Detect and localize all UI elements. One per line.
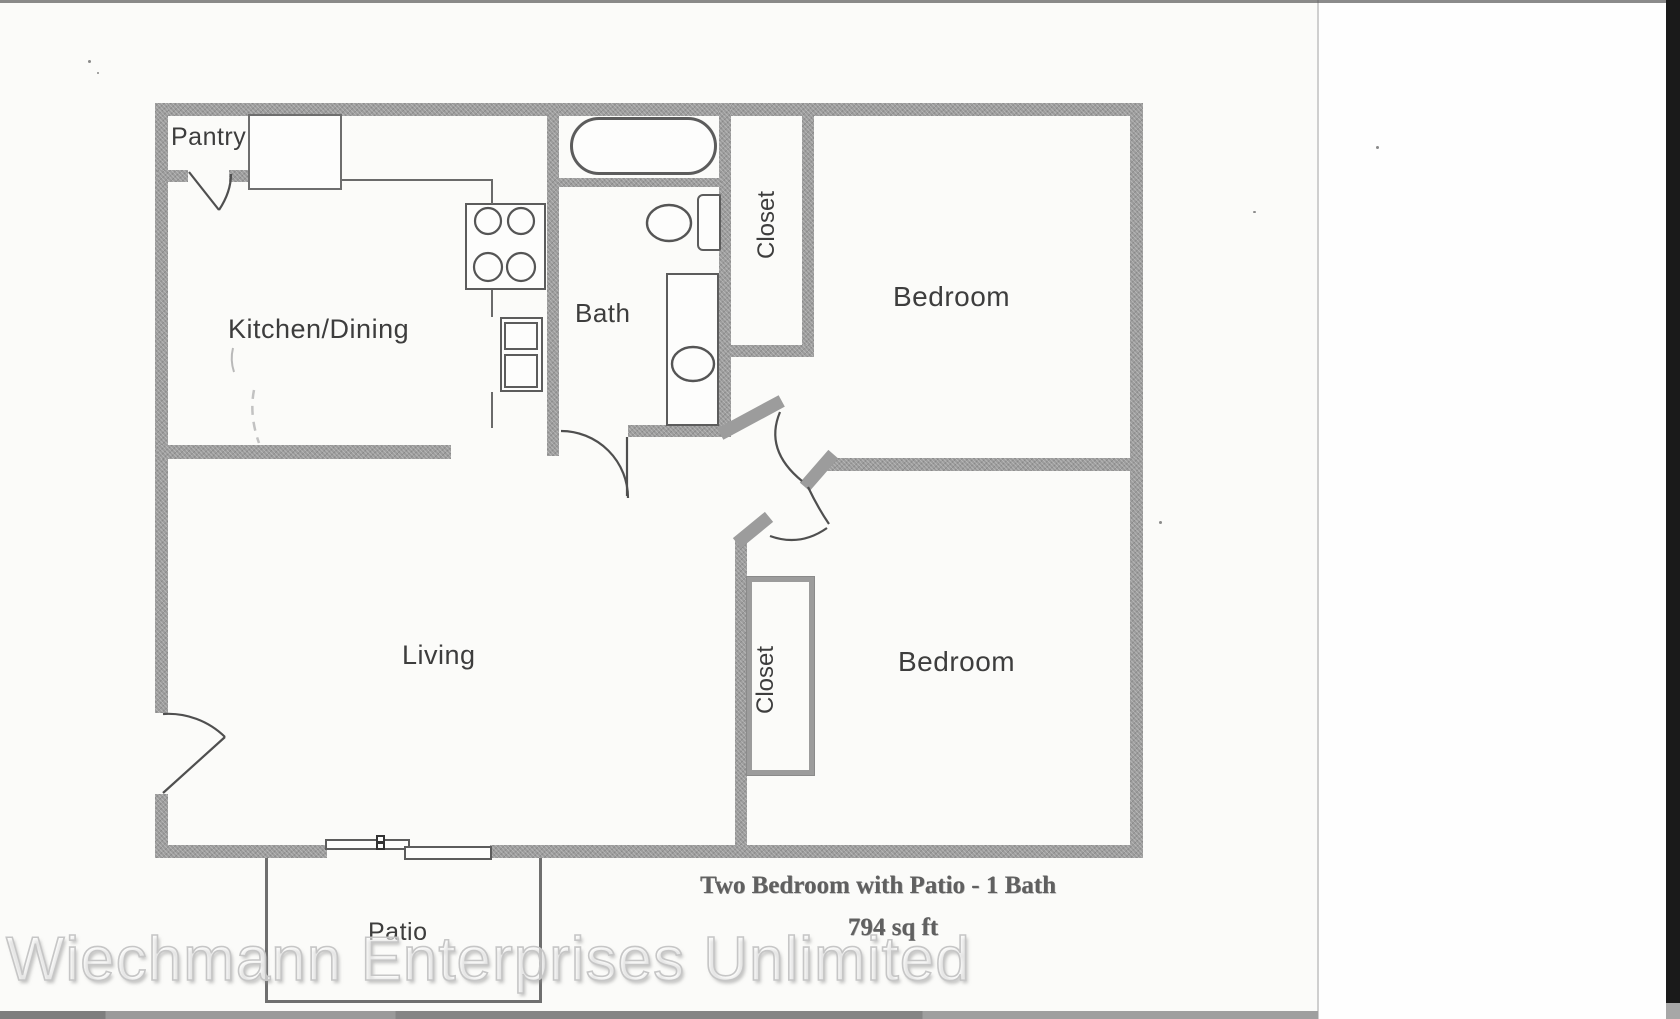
scanner-edge-right-foot [1666,1003,1680,1019]
wall-bottom-main [490,845,1143,858]
wall-bedroom-divider [827,458,1143,471]
wall-kitchen-living-divider [157,445,451,459]
pantry-cabinet [248,114,342,190]
kitchen-sink-basin-top [504,322,538,350]
scanned-floor-plan: Pantry Kitchen/Dining Bath Closet Bedroo… [0,0,1680,1019]
stove-cooktop [465,203,546,290]
room-label-pantry: Pantry [171,123,246,152]
room-label-bedroom-top: Bedroom [893,281,1010,313]
scan-speck [88,60,91,63]
toilet-tank [697,194,721,251]
room-label-bedroom-bottom: Bedroom [898,646,1015,678]
room-label-living: Living [402,640,476,671]
wall-bath-south [628,425,731,437]
scan-speck [97,72,99,74]
scan-margin-right [1318,0,1666,1019]
plan-title: Two Bedroom with Patio - 1 Bath [700,872,1052,900]
wall-bedroom2-west [735,538,747,845]
wall-closet-top-bottom [731,345,814,357]
scanner-edge-right [1666,0,1680,1003]
room-label-kitchen-dining: Kitchen/Dining [228,314,409,345]
kitchen-sink-basin-bottom [504,354,538,388]
page-fold-line [1317,0,1319,1019]
scanner-edge-top [0,0,1666,3]
sliding-door-panel-inner [404,846,492,860]
wall-kitchen-bath-divider [547,103,559,456]
wall-tub-alcove [559,178,721,187]
wall-bottom-left [155,845,327,858]
wall-right [1130,103,1143,858]
room-label-closet-bottom: Closet [752,632,780,728]
wall-pantry-stub-left [157,170,188,182]
scanner-edge-bottom [0,1011,1318,1019]
wall-left-upper [155,103,168,713]
room-label-bath: Bath [575,298,631,329]
wall-closet-bedroom-divider [802,103,814,357]
vanity-counter [666,273,719,426]
sliding-door-panel-outer [325,839,410,850]
sliding-door-latch-mark [376,842,385,850]
scan-speck [1253,211,1256,213]
scan-speck [1376,146,1379,149]
bathtub [570,117,717,175]
watermark-text: Wiechmann Enterprises Unlimited [6,924,971,995]
room-label-closet-top: Closet [753,177,781,273]
scan-speck [1159,521,1162,524]
wall-pantry-stub-right [229,170,248,182]
wall-bath-closet-divider [719,103,731,437]
